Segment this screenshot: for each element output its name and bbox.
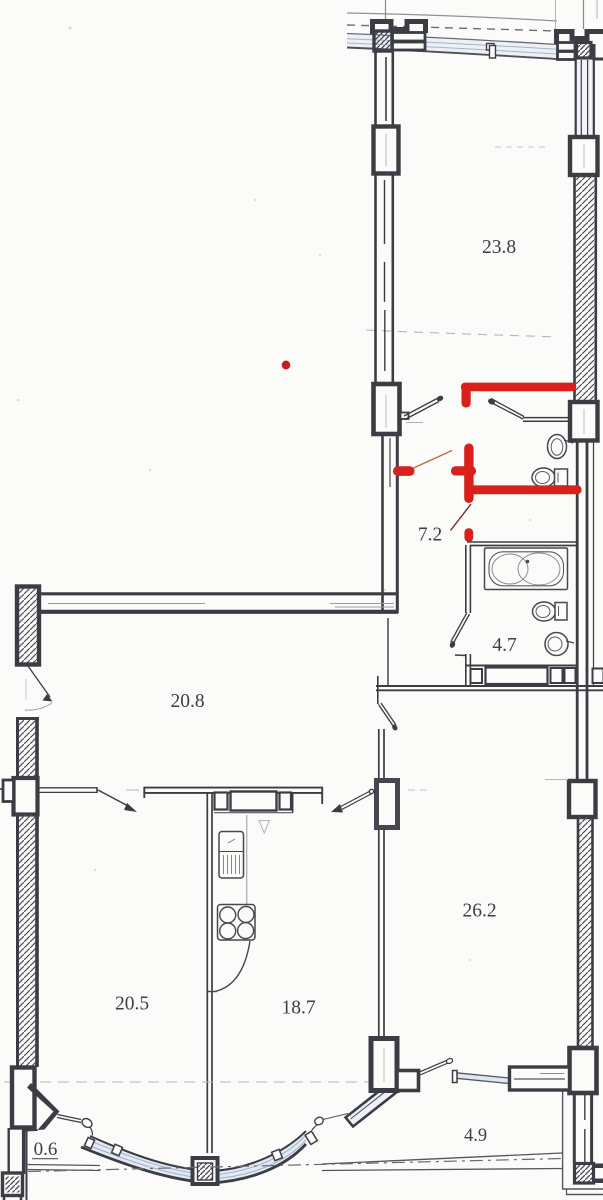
svg-text:26.2: 26.2 (462, 901, 496, 922)
svg-text:0.6: 0.6 (34, 1139, 58, 1160)
svg-text:18.7: 18.7 (281, 998, 315, 1019)
svg-text:7.2: 7.2 (418, 525, 442, 546)
svg-text:20.5: 20.5 (115, 994, 149, 1015)
svg-text:20.8: 20.8 (170, 691, 204, 712)
svg-text:4.9: 4.9 (464, 1126, 487, 1146)
svg-text:4.7: 4.7 (492, 635, 517, 656)
svg-text:23.8: 23.8 (482, 237, 516, 258)
